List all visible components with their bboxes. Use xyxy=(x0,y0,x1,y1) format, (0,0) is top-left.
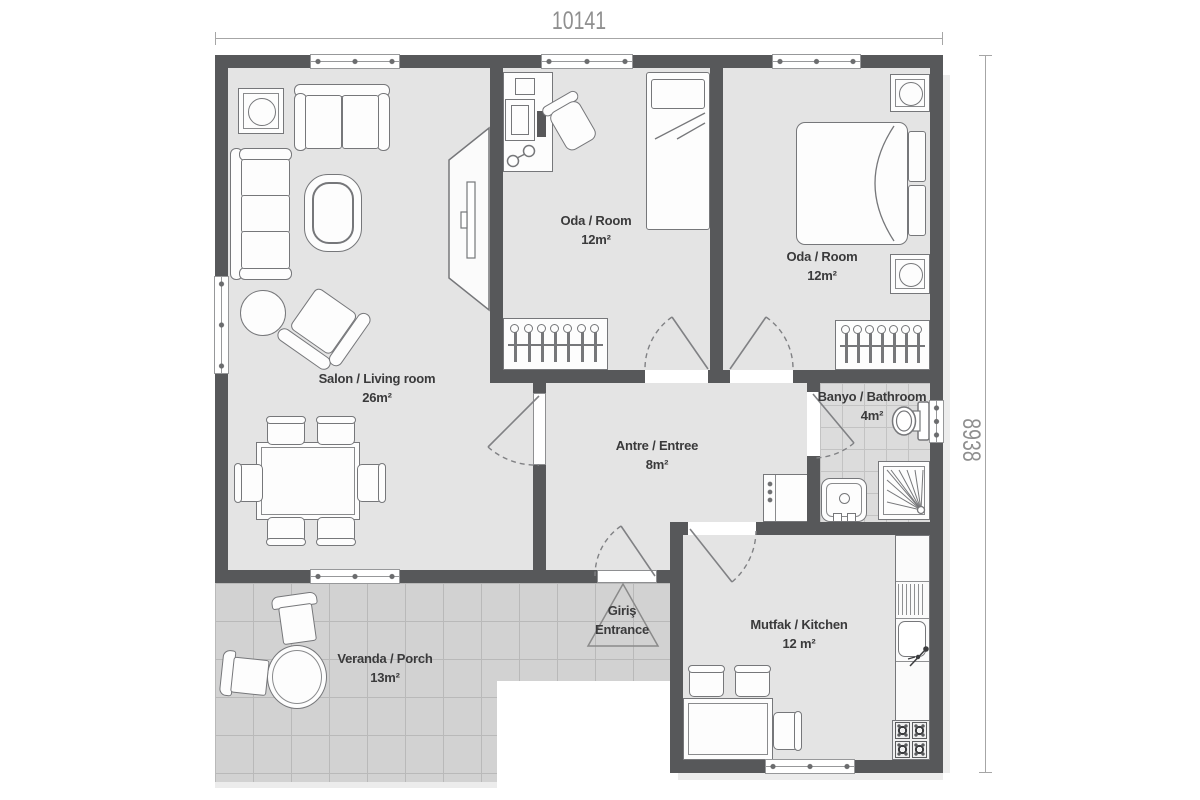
room-name: Antre / Entree xyxy=(587,437,727,456)
dining-chair xyxy=(317,419,355,445)
door-swing-bedroom2 xyxy=(726,303,798,373)
dining-table xyxy=(256,442,360,520)
washbasin xyxy=(821,478,867,522)
wardrobe xyxy=(503,318,608,370)
plan-shadow xyxy=(678,773,943,780)
room-name: Salon / Living room xyxy=(297,370,457,389)
faucet xyxy=(906,645,932,671)
window-living-bottom xyxy=(310,569,400,584)
loveseat-sofa xyxy=(294,84,390,154)
dimension-tick xyxy=(979,772,992,773)
entrance-label-tr: Giriş xyxy=(572,602,672,621)
room-area: 13m² xyxy=(305,669,465,688)
plan-shadow xyxy=(215,782,497,788)
dimension-line-right xyxy=(985,55,986,773)
room-label-bedroom2: Oda / Room 12m² xyxy=(762,248,882,286)
room-label-bathroom: Banyo / Bathroom 4m² xyxy=(802,388,942,426)
nightstand xyxy=(890,74,930,112)
room-label-living-room: Salon / Living room 26m² xyxy=(297,370,457,408)
door-swing-bedroom1 xyxy=(640,303,712,373)
room-label-hall: Antre / Entree 8m² xyxy=(587,437,727,475)
desk-accessory xyxy=(505,142,539,170)
dimension-tick xyxy=(942,32,943,45)
window-living-top xyxy=(310,54,400,69)
single-bed xyxy=(646,72,710,230)
kitchen-chair xyxy=(689,668,724,697)
door-swing-kitchen xyxy=(686,527,760,589)
door-swing-living xyxy=(480,390,562,470)
door-swing-entrance xyxy=(590,520,660,580)
window-kitchen-bottom xyxy=(765,759,855,774)
shower xyxy=(878,461,930,520)
nightstand xyxy=(890,254,930,294)
porch-chair xyxy=(218,646,275,703)
tv-unit xyxy=(441,126,491,312)
room-area: 4m² xyxy=(802,407,942,426)
window-bedroom1-top xyxy=(541,54,633,69)
room-name: Veranda / Porch xyxy=(305,650,465,669)
dimension-label-width: 10141 xyxy=(501,7,657,36)
double-bed xyxy=(796,120,930,247)
coffee-table xyxy=(304,174,362,252)
dining-chair xyxy=(267,517,305,543)
fridge xyxy=(763,474,808,522)
entrance-label-en: Entrance xyxy=(572,621,672,640)
dining-chair xyxy=(267,419,305,445)
room-area: 8m² xyxy=(587,456,727,475)
wall-living-bedroom1 xyxy=(490,68,503,383)
room-area: 12 m² xyxy=(719,635,879,654)
plant-table xyxy=(238,88,284,134)
dimension-label-height: 8938 xyxy=(959,378,985,503)
dining-chair xyxy=(357,464,383,502)
window-living-left xyxy=(214,276,229,374)
dining-chair xyxy=(317,517,355,543)
dimension-tick xyxy=(979,55,992,56)
kitchen-chair xyxy=(735,668,770,697)
entrance-label: Giriş Entrance xyxy=(572,602,672,640)
room-area: 26m² xyxy=(297,389,457,408)
floor-plan: Salon / Living room 26m² Oda / Room 12m²… xyxy=(0,0,1200,800)
stove xyxy=(892,720,930,760)
window-bedroom2-top xyxy=(772,54,861,69)
room-label-bedroom1: Oda / Room 12m² xyxy=(536,212,656,250)
room-label-kitchen: Mutfak / Kitchen 12 m² xyxy=(719,616,879,654)
three-seat-sofa xyxy=(230,148,292,280)
dining-chair xyxy=(237,464,263,502)
porch-chair xyxy=(269,591,326,649)
room-area: 12m² xyxy=(762,267,882,286)
kitchen-chair xyxy=(773,712,799,750)
plan-shadow xyxy=(943,75,950,773)
dimension-line-top xyxy=(215,38,943,39)
wardrobe xyxy=(835,320,930,370)
room-name: Banyo / Bathroom xyxy=(802,388,942,407)
side-table xyxy=(240,290,286,336)
room-label-veranda: Veranda / Porch 13m² xyxy=(305,650,465,688)
drainboard xyxy=(898,584,926,615)
room-name: Oda / Room xyxy=(536,212,656,231)
room-name: Mutfak / Kitchen xyxy=(719,616,879,635)
kitchen-table xyxy=(683,698,773,760)
room-area: 12m² xyxy=(536,231,656,250)
wall-bedrooms-bottom xyxy=(490,370,943,383)
wall-kitchen-left xyxy=(670,522,683,773)
dimension-tick xyxy=(215,32,216,45)
room-name: Oda / Room xyxy=(762,248,882,267)
